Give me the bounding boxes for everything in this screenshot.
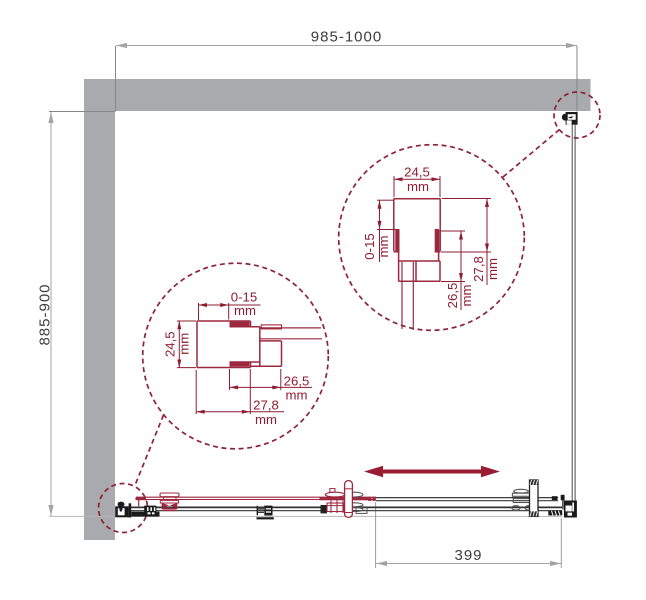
svg-text:mm: mm bbox=[255, 412, 277, 427]
svg-text:mm: mm bbox=[459, 285, 474, 307]
svg-text:mm: mm bbox=[177, 333, 192, 355]
svg-text:27,8: 27,8 bbox=[471, 256, 486, 282]
svg-text:mm: mm bbox=[286, 388, 308, 403]
svg-text:27,8: 27,8 bbox=[253, 398, 279, 413]
svg-text:0-15: 0-15 bbox=[362, 233, 377, 259]
svg-text:mm: mm bbox=[407, 179, 429, 194]
svg-text:26,5: 26,5 bbox=[284, 374, 310, 389]
svg-text:mm: mm bbox=[485, 258, 500, 280]
svg-text:885-900: 885-900 bbox=[37, 283, 54, 345]
svg-text:24,5: 24,5 bbox=[404, 165, 430, 180]
svg-text:mm: mm bbox=[234, 303, 256, 318]
svg-text:mm: mm bbox=[376, 236, 391, 258]
svg-text:24,5: 24,5 bbox=[163, 331, 178, 357]
svg-text:399: 399 bbox=[454, 547, 482, 564]
svg-text:985-1000: 985-1000 bbox=[311, 29, 382, 46]
svg-text:26,5: 26,5 bbox=[445, 283, 460, 309]
